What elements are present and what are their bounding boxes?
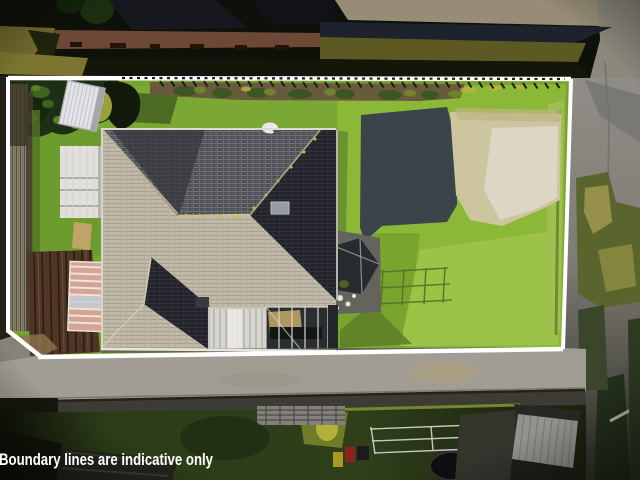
- svg-text:Boundary lines are indicative: Boundary lines are indicative only: [0, 451, 214, 469]
